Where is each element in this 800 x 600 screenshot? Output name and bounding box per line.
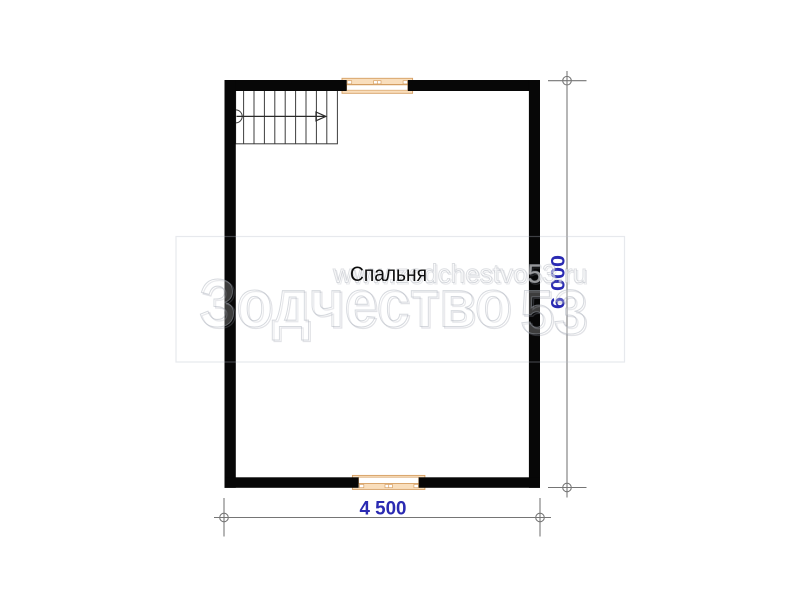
svg-text:53: 53	[520, 278, 587, 348]
svg-text:4 500: 4 500	[360, 497, 407, 519]
svg-text:Спальня: Спальня	[350, 263, 427, 286]
